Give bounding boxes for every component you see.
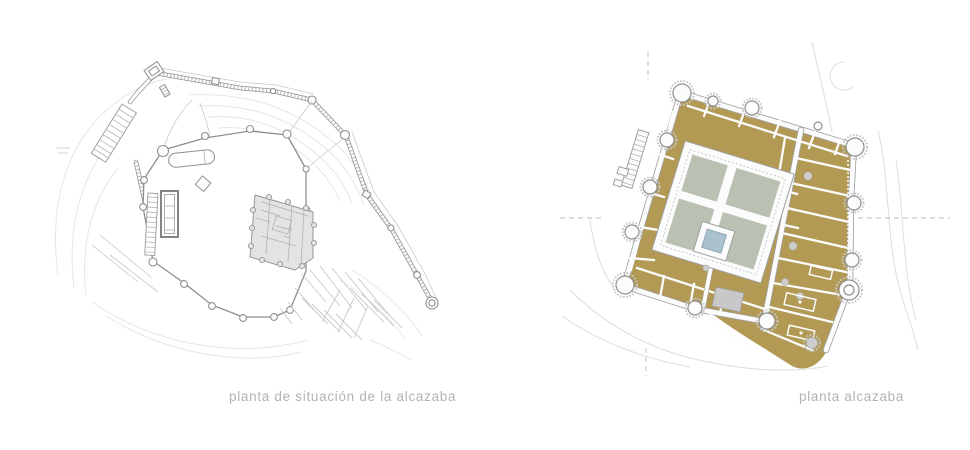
enclosure-tower — [181, 281, 188, 288]
alcazaba-plan-drawing — [560, 40, 960, 380]
wall-tower — [341, 131, 350, 140]
site-plan-caption: planta de situación de la alcazaba — [229, 389, 456, 404]
enclosure-tower — [209, 303, 216, 310]
end-tower-inner — [429, 300, 435, 306]
wall-tower — [414, 272, 421, 279]
outer-staircase — [91, 104, 136, 162]
enclosure-tower — [271, 314, 278, 321]
wall-tower — [212, 78, 220, 85]
enclosure-tower — [283, 130, 291, 138]
corner-tower — [144, 61, 164, 80]
page-canvas: planta de situación de la alcazaba plant… — [0, 0, 970, 450]
alcazaba-plan-caption: planta alcazaba — [799, 389, 904, 404]
enclosure-tower — [202, 133, 209, 140]
site-plan-drawing — [40, 40, 480, 360]
enclosure-tower — [240, 315, 247, 322]
enclosure-tower — [303, 166, 309, 172]
palace-building — [248, 194, 316, 270]
enclosure-tower — [141, 177, 148, 184]
enclosure-tower — [158, 146, 169, 157]
gate-stair — [159, 85, 170, 98]
enclosure-tower — [247, 126, 254, 133]
wall-tower — [308, 96, 316, 104]
enclosure-tower — [149, 258, 157, 266]
wall-tower — [388, 225, 394, 231]
wall-tower — [270, 88, 275, 93]
enclosure-tower — [140, 204, 147, 211]
